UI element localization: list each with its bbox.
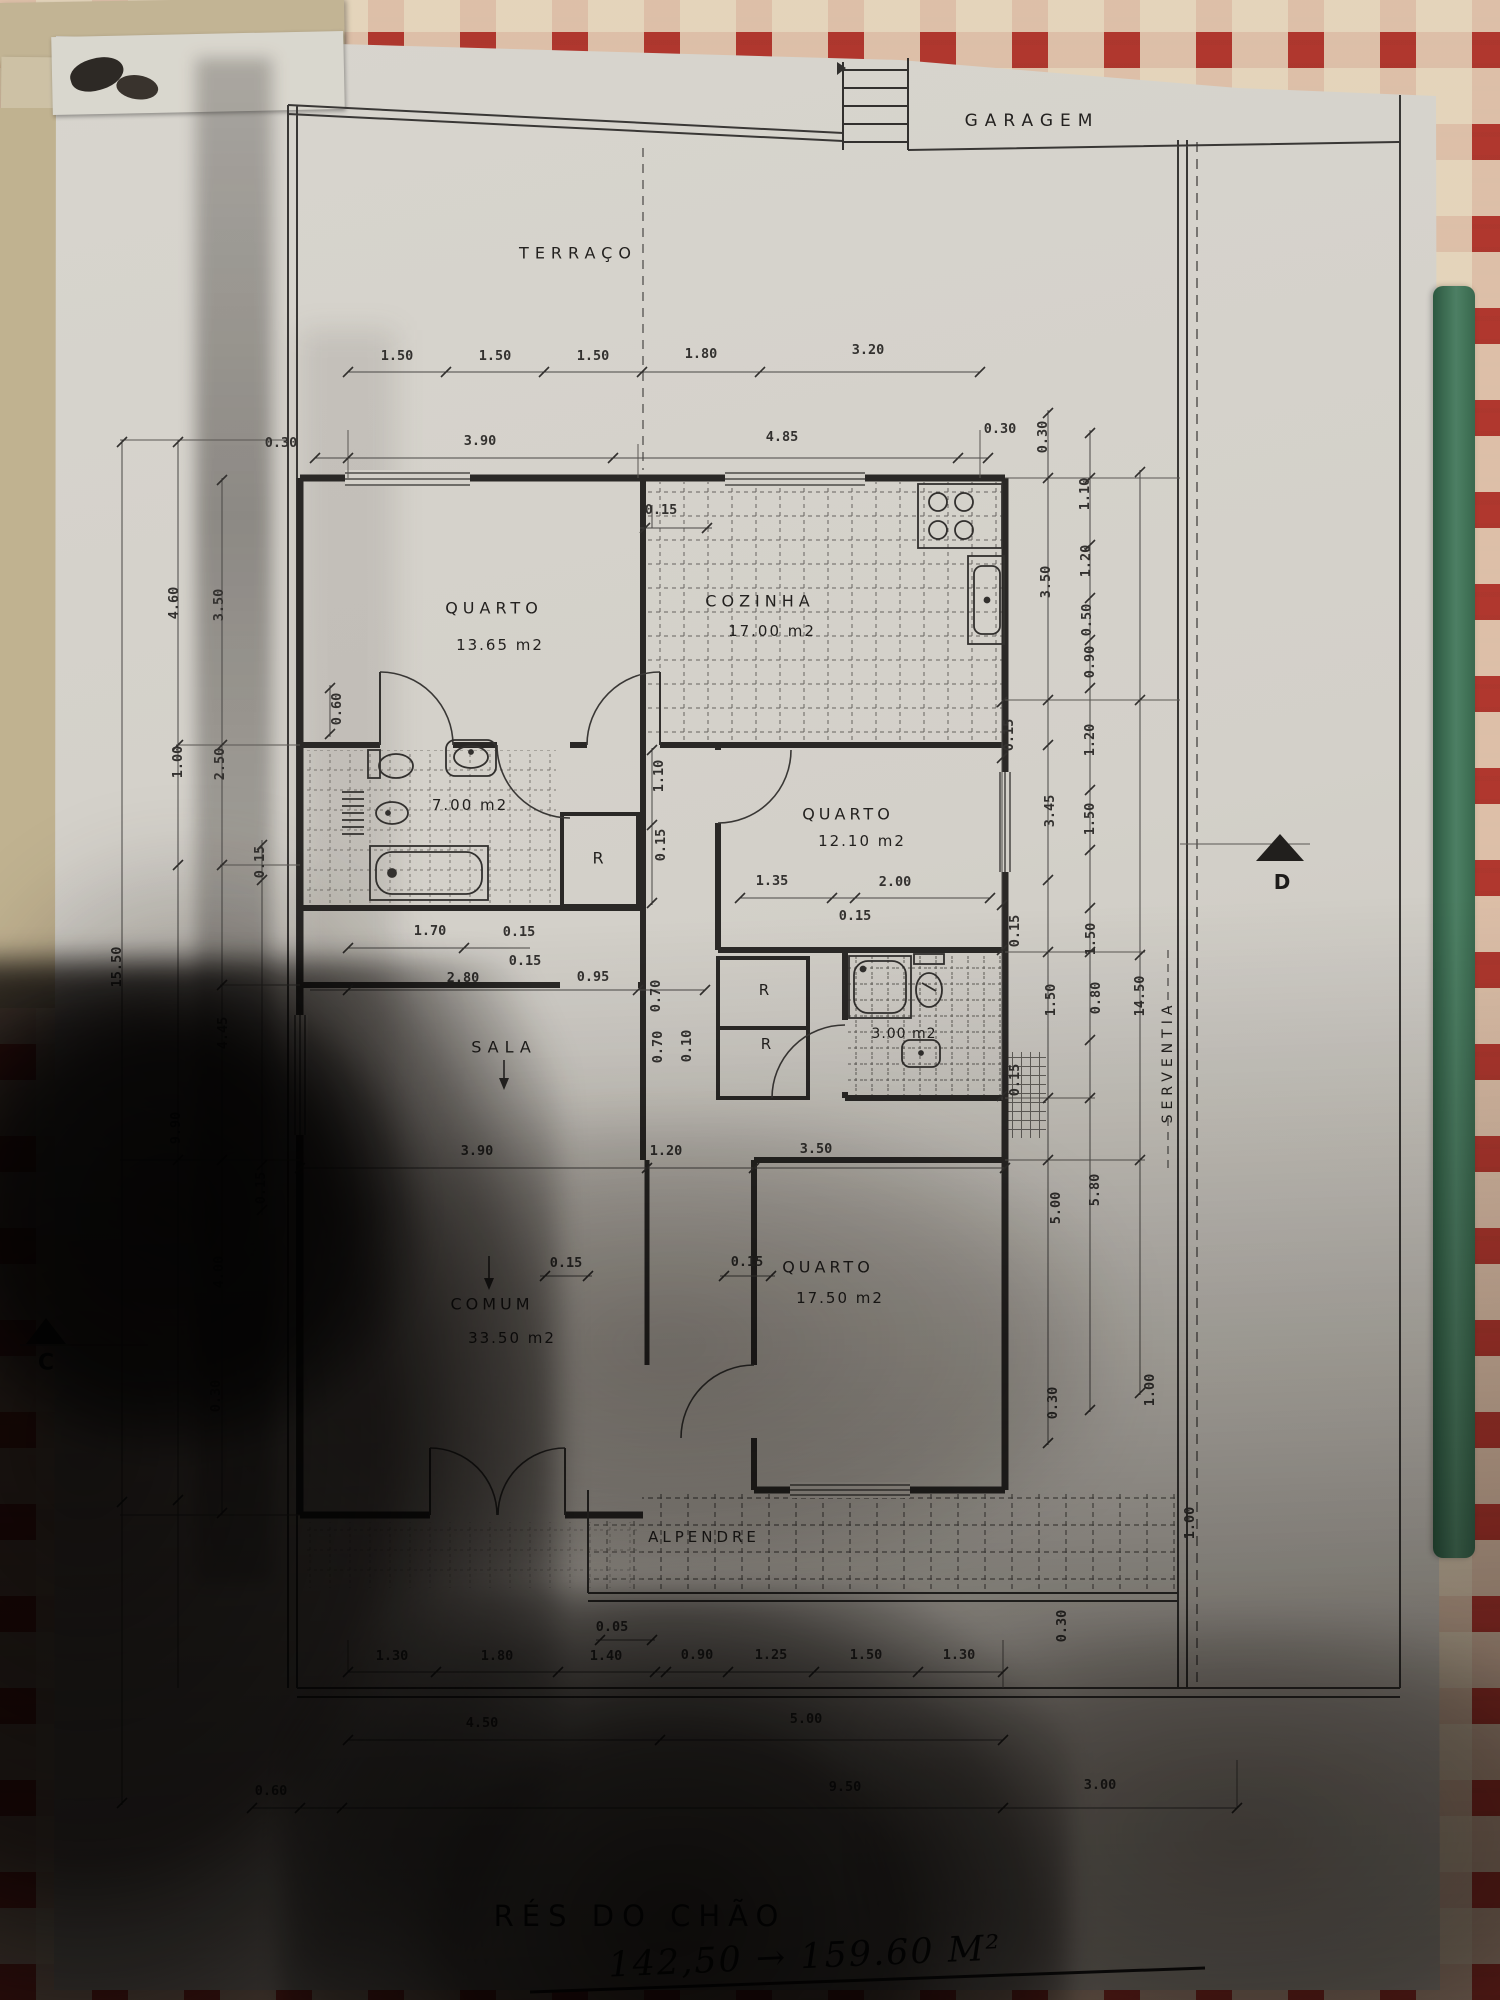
photo-of-floor-plan: RÉS DO CHÃO 142,50 → 159.60 M² GARAGEMTE… — [0, 0, 1500, 2000]
photo-tint — [0, 0, 1500, 2000]
